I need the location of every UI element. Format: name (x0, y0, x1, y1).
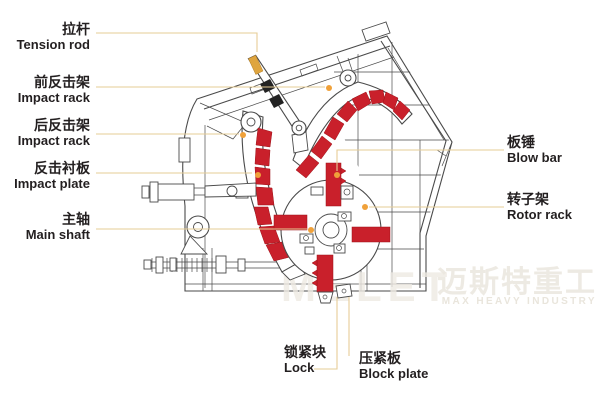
label-front-impact-rack-en: Impact rack (0, 90, 90, 105)
label-lock-zh: 锁紧块 (284, 344, 326, 360)
label-block-plate: 压紧板 Block plate (359, 350, 428, 381)
watermark-en: MAX HEAVY INDUSTRY (442, 296, 597, 307)
pointer-dot-main-shaft (308, 227, 314, 233)
label-impact-plate: 反击衬板 Impact plate (0, 160, 90, 191)
blow-bar-top (326, 163, 341, 206)
blow-bar-bottom (317, 255, 333, 292)
label-impact-plate-zh: 反击衬板 (0, 160, 90, 176)
pointer-dot-blow-bar (334, 172, 340, 178)
pointer-dot-rear-rack (240, 132, 246, 138)
label-lock-en: Lock (284, 360, 326, 375)
label-main-shaft-en: Main shaft (0, 227, 90, 242)
label-blow-bar-en: Blow bar (507, 150, 562, 165)
label-rotor-rack-en: Rotor rack (507, 207, 572, 222)
label-block-plate-zh: 压紧板 (359, 350, 428, 366)
block-plate-part (336, 284, 352, 298)
main-shaft-bore (323, 222, 339, 238)
watermark-zh: 迈斯特重工 (437, 266, 597, 299)
label-front-impact-rack-zh: 前反击架 (0, 74, 90, 90)
label-tension-rod-zh: 拉杆 (0, 21, 90, 37)
blow-bar-left (274, 215, 307, 230)
label-rear-impact-rack-zh: 后反击架 (0, 117, 90, 133)
label-blow-bar-zh: 板锤 (507, 134, 562, 150)
diagram-stage: MELET 迈斯特重工 MAX HEAVY INDUSTRY (0, 0, 600, 400)
label-front-impact-rack: 前反击架 Impact rack (0, 74, 90, 105)
label-blow-bar: 板锤 Blow bar (507, 134, 562, 165)
label-rear-impact-rack: 后反击架 Impact rack (0, 117, 90, 148)
label-rear-impact-rack-en: Impact rack (0, 133, 90, 148)
lock-block (318, 292, 333, 303)
pointer-dot-impact-plate (255, 172, 261, 178)
pointer-dot-front-rack (326, 85, 332, 91)
label-impact-plate-en: Impact plate (0, 176, 90, 191)
label-block-plate-en: Block plate (359, 366, 428, 381)
label-rotor-rack: 转子架 Rotor rack (507, 191, 572, 222)
label-rotor-rack-zh: 转子架 (507, 191, 572, 207)
label-main-shaft-zh: 主轴 (0, 211, 90, 227)
label-tension-rod: 拉杆 Tension rod (0, 21, 90, 52)
label-main-shaft: 主轴 Main shaft (0, 211, 90, 242)
blow-bar-right (352, 227, 390, 242)
pointer-dot-rotor-rack (362, 204, 368, 210)
label-lock: 锁紧块 Lock (284, 344, 326, 375)
label-tension-rod-en: Tension rod (0, 37, 90, 52)
